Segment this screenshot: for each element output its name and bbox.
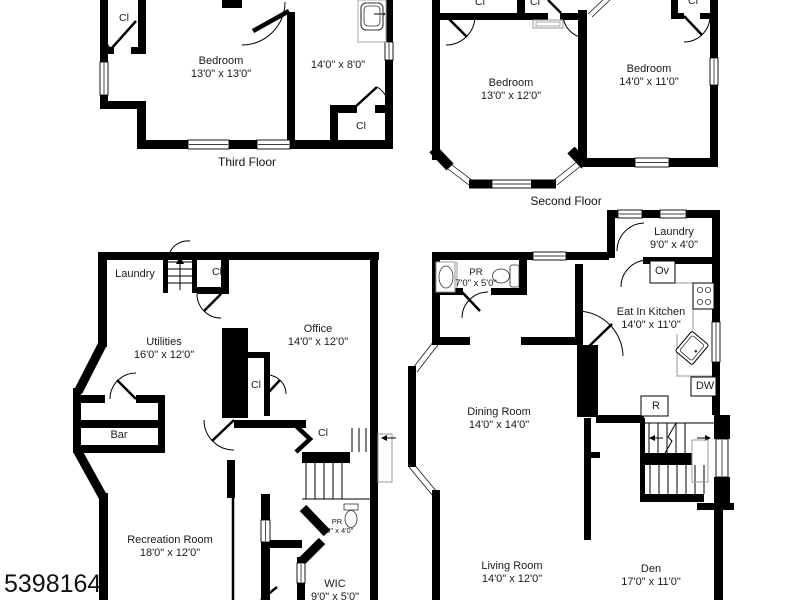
closet-label: Cl: [530, 0, 540, 8]
closet-label: Cl: [119, 12, 129, 24]
closet-label: Cl: [212, 266, 222, 278]
room-label-kitchen: Eat In Kitchen 14'0" x 11'0": [617, 306, 686, 332]
room-name: Bedroom: [191, 55, 251, 68]
closet-label: Cl: [688, 0, 698, 7]
room-dims: 17'0" x 11'0": [621, 576, 681, 589]
bay-window: [408, 337, 441, 496]
room-label-bedroom-right: Bedroom 14'0" x 11'0": [619, 63, 679, 89]
room-dims: 16'0" x 12'0": [134, 349, 194, 362]
door-swing: [462, 292, 488, 318]
dishwasher-label: DW: [696, 380, 714, 393]
floor-title-second: Second Floor: [530, 194, 601, 208]
stairs-up: [163, 241, 197, 293]
room-label-laundry-first: Laundry 9'0" x 4'0": [650, 226, 698, 252]
room-label-dining: Dining Room 14'0" x 14'0": [467, 406, 531, 432]
room-dims: 14'0" x 11'0": [619, 76, 679, 89]
room-label-powder-basement: PR 4'0" x 4'0": [321, 518, 354, 536]
room-name: Living Room: [481, 560, 542, 573]
room-dims: 18'0" x 12'0": [127, 547, 213, 560]
room-name: WIC: [311, 578, 359, 591]
room-name: Utilities: [134, 336, 194, 349]
floor-title-third: Third Floor: [218, 155, 276, 169]
room-dims: 13'0" x 13'0": [191, 68, 251, 81]
room-name: Dining Room: [467, 406, 531, 419]
sink-icon: [358, 0, 386, 42]
room-label-den: Den 17'0" x 11'0": [621, 563, 681, 589]
room-label-recreation: Recreation Room 18'0" x 12'0": [127, 534, 213, 560]
room-dims: 9'0" x 4'0": [650, 239, 698, 252]
room-label-side-area: 14'0" x 8'0": [311, 59, 365, 72]
room-label-bedroom-left: Bedroom 13'0" x 12'0": [481, 77, 541, 103]
stove-icon: [693, 283, 714, 309]
staircase: [640, 418, 714, 496]
room-dims: 14'0" x 11'0": [617, 319, 686, 332]
closet-label: Cl: [251, 379, 261, 391]
room-label-utilities: Utilities 16'0" x 12'0": [134, 336, 194, 362]
closet-label: Cl: [475, 0, 485, 8]
room-dims: 7'0" x 5'0": [455, 278, 497, 289]
room-name: Laundry: [650, 226, 698, 239]
floor-plan-page: Cl Bedroom 13'0" x 13'0" 14'0" x 8'0" Cl…: [0, 0, 800, 600]
room-label-office: Office 14'0" x 12'0": [288, 323, 348, 349]
room-dims: 13'0" x 12'0": [481, 90, 541, 103]
room-label-powder-first: PR 7'0" x 5'0": [455, 267, 497, 289]
oven-label: Ov: [655, 265, 669, 278]
floor-plan-drawing: [0, 0, 800, 600]
kitchen-sink-icon: [675, 331, 709, 365]
bay-window: [433, 149, 585, 188]
room-name: Bedroom: [481, 77, 541, 90]
room-label-laundry-basement: Laundry: [115, 268, 155, 281]
room-label-bedroom-third: Bedroom 13'0" x 13'0": [191, 55, 251, 81]
room-dims: 14'0" x 8'0": [311, 59, 365, 72]
room-name: Eat In Kitchen: [617, 306, 686, 319]
refrigerator-label: R: [652, 400, 660, 413]
room-label-wic: WIC 9'0" x 5'0": [311, 578, 359, 600]
sink-icon: [436, 262, 455, 292]
closet-door: [296, 426, 310, 452]
room-dims: 14'0" x 12'0": [288, 336, 348, 349]
room-label-living: Living Room 14'0" x 12'0": [481, 560, 542, 586]
room-dims: 14'0" x 14'0": [467, 419, 531, 432]
door-swing: [204, 420, 234, 450]
second-floor-plan: [432, 0, 718, 188]
door-swing: [110, 373, 136, 399]
listing-id: 5398164: [4, 570, 101, 600]
side-entry: [378, 434, 396, 482]
room-dims: 4'0" x 4'0": [321, 527, 354, 536]
chimney: [222, 328, 248, 418]
basement-plan: [73, 241, 396, 600]
room-name: Office: [288, 323, 348, 336]
room-name: Bedroom: [619, 63, 679, 76]
room-name: PR: [455, 267, 497, 278]
room-name: Den: [621, 563, 681, 576]
closet-label: Cl: [356, 120, 366, 132]
door-swing: [197, 294, 221, 318]
room-label-bar: Bar: [110, 429, 127, 442]
room-dims: 14'0" x 12'0": [481, 573, 542, 586]
room-dims: 9'0" x 5'0": [311, 591, 359, 600]
closet-label: Cl: [318, 427, 328, 439]
closet-shelf-icon: [533, 20, 563, 28]
room-name: Recreation Room: [127, 534, 213, 547]
